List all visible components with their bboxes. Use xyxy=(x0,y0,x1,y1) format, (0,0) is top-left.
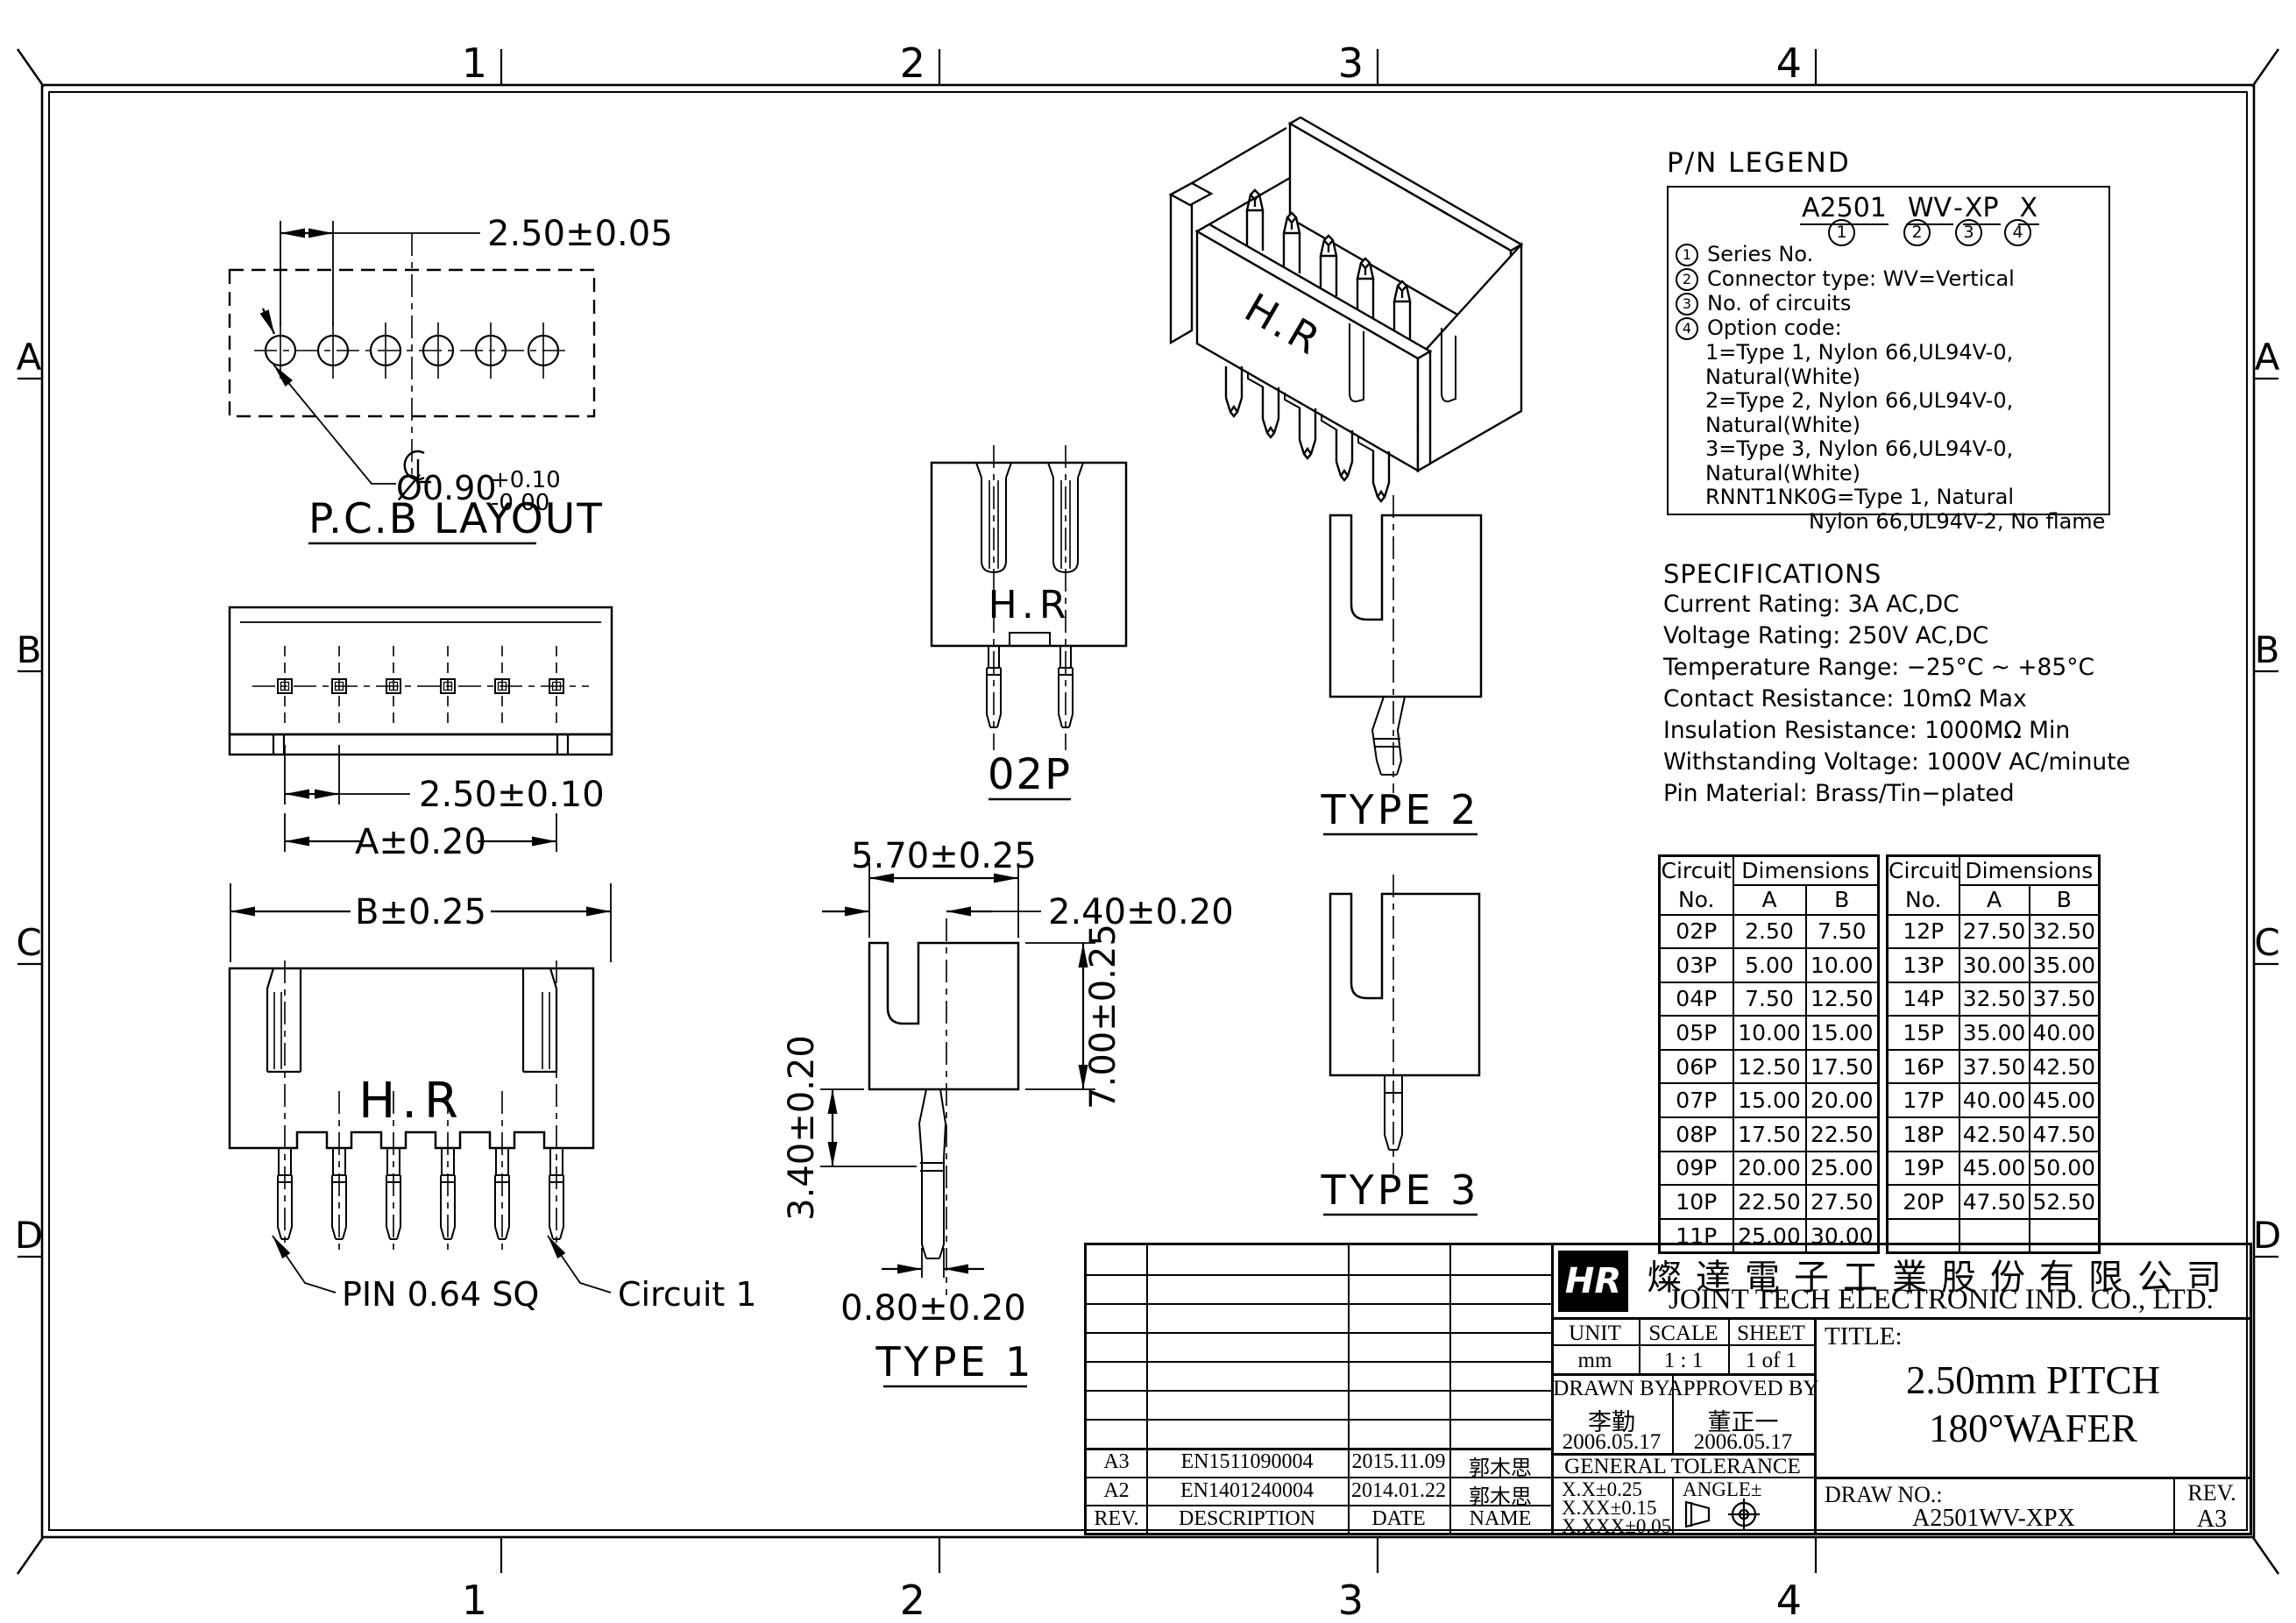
svg-text:3: 3 xyxy=(1338,1577,1364,1623)
approved-by-date: 2006.05.17 xyxy=(1694,1430,1793,1455)
type2-view xyxy=(1323,495,1481,834)
item-number: 2 xyxy=(1676,268,1698,291)
svg-text:C: C xyxy=(16,921,41,964)
specification-line: Insulation Resistance: 1000MΩ Min xyxy=(1663,715,2224,747)
pn-option-continuation: Nylon 66,UL94V-2, No flame xyxy=(1809,510,2108,535)
02p-label: 02P xyxy=(988,750,1072,799)
revision-desc: EN1511090004 xyxy=(1180,1450,1313,1474)
pn-option-line: 2=Type 2, Nylon 66,UL94V-0, Natural(Whit… xyxy=(1705,389,2108,437)
type3-view xyxy=(1323,875,1479,1215)
revision-name: 郭木思 xyxy=(1469,1450,1532,1481)
pn-legend-title: P/N LEGEND xyxy=(1667,147,2110,179)
table-row: 14P32.5037.50 xyxy=(1888,982,2100,1017)
item-text: Series No. xyxy=(1707,243,1813,266)
svg-text:B: B xyxy=(2255,628,2280,671)
pn-legend-item: 3No. of circuits xyxy=(1676,292,2108,315)
table-row: 17P40.0045.00 xyxy=(1888,1083,2100,1117)
svg-text:2: 2 xyxy=(900,1577,925,1623)
type3-label: TYPE 3 xyxy=(1321,1166,1480,1214)
rev-label: REV. xyxy=(2187,1480,2236,1506)
table-row: 05P10.0015.00 xyxy=(1660,1016,1879,1050)
col-circuit: Circuit xyxy=(1660,856,1733,885)
pn-legend-items: 1Series No.2Connector type: WV=Vertical3… xyxy=(1669,243,2108,340)
drawing-sheet: 1 2 3 4 1 2 3 4 A B C D A B C D 2.50±0.0… xyxy=(0,0,2296,1623)
pn-option-line: RNNT1NK0G=Type 1, Natural xyxy=(1705,485,2108,510)
specification-line: Voltage Rating: 250V AC,DC xyxy=(1663,620,2224,652)
revision-rev: A2 xyxy=(1103,1479,1129,1503)
rev-value: A3 xyxy=(2197,1506,2227,1534)
table-row: 16P37.5042.50 xyxy=(1888,1050,2100,1084)
title-block: HR 燦達電子工業股份有限公司 JOINT TECH ELECTRONIC IN… xyxy=(1084,1243,2252,1535)
svg-text:1: 1 xyxy=(462,1577,487,1623)
revision-header-name: NAME xyxy=(1470,1507,1532,1531)
pn-legend-item: 2Connector type: WV=Vertical xyxy=(1676,267,2108,291)
company-logo: HR xyxy=(1558,1251,1628,1312)
draw-no-value: A2501WV-XPX xyxy=(1912,1505,2075,1533)
drawn-by-date: 2006.05.17 xyxy=(1563,1430,1662,1455)
svg-text:D: D xyxy=(2253,1214,2281,1257)
item-number: 3 xyxy=(1676,293,1698,315)
revision-header-rev: REV. xyxy=(1095,1507,1139,1531)
company-name-en: JOINT TECH ELECTRONIC IND. CO., LTD. xyxy=(1669,1284,2214,1316)
front-view-brand: H.R xyxy=(358,1073,465,1130)
circuit-dimension-tables: Circuit Dimensions No. A B 02P2.507.5003… xyxy=(1658,854,2101,1254)
item-text: No. of circuits xyxy=(1707,292,1851,315)
svg-text:D: D xyxy=(15,1214,43,1257)
col-b: B xyxy=(2030,885,2100,915)
specifications-title: SPECIFICATIONS xyxy=(1663,559,2224,589)
pn-option-lines: 1=Type 1, Nylon 66,UL94V-0, Natural(Whit… xyxy=(1669,341,2108,510)
col-circuit: Circuit xyxy=(1888,856,1959,885)
pn-option-line: 1=Type 1, Nylon 66,UL94V-0, Natural(Whit… xyxy=(1705,341,2108,389)
dim-side-width: 5.70±0.25 xyxy=(851,836,1037,876)
dim-pin-width: 0.80±0.20 xyxy=(840,1288,1026,1329)
pn-option-line: 3=Type 3, Nylon 66,UL94V-0, Natural(Whit… xyxy=(1705,437,2108,485)
approved-by-label: APPROVED BY xyxy=(1668,1377,1819,1401)
sheet-label: SHEET xyxy=(1737,1322,1805,1346)
isometric-view xyxy=(1171,117,1521,501)
specification-lines: Current Rating: 3A AC,DCVoltage Rating: … xyxy=(1663,589,2224,810)
specification-line: Temperature Range: −25°C ~ +85°C xyxy=(1663,652,2224,684)
item-number: 4 xyxy=(1676,317,1698,340)
pn-legend-item: 4Option code: xyxy=(1676,316,2108,340)
svg-text:4: 4 xyxy=(1776,39,1802,87)
tolerance-3: X.XXX±0.05 xyxy=(1562,1515,1671,1538)
svg-text:C: C xyxy=(2254,921,2279,964)
scale-value: 1 : 1 xyxy=(1664,1349,1703,1373)
col-no: No. xyxy=(1888,885,1959,915)
svg-text:2: 2 xyxy=(900,39,925,87)
revision-header-desc: DESCRIPTION xyxy=(1179,1507,1315,1531)
dim-b: B±0.25 xyxy=(355,892,486,932)
revision-name: 郭木思 xyxy=(1469,1479,1532,1510)
revision-rev: A3 xyxy=(1103,1450,1129,1474)
circuit-label: Circuit 1 xyxy=(618,1275,757,1314)
svg-text:3: 3 xyxy=(1338,39,1364,87)
table-row: 03P5.0010.00 xyxy=(1660,948,1879,982)
pn-legend: P/N LEGEND A2501 WV-XP X 1 2 3 4 1Series… xyxy=(1667,147,2110,515)
col-dimensions: Dimensions xyxy=(1733,856,1879,885)
table-row: 12P27.5032.50 xyxy=(1888,915,2100,949)
table-row: 08P17.5022.50 xyxy=(1660,1117,1879,1152)
table-row: 19P45.0050.00 xyxy=(1888,1152,2100,1186)
col-dimensions: Dimensions xyxy=(1959,856,2100,885)
table-row: 10P22.5027.50 xyxy=(1660,1185,1879,1219)
svg-text:A: A xyxy=(17,336,42,379)
pin-label: PIN 0.64 SQ xyxy=(342,1275,539,1314)
dim-side-offset: 2.40±0.20 xyxy=(1048,892,1234,932)
svg-text:B: B xyxy=(17,628,42,671)
table-row: 07P15.0020.00 xyxy=(1660,1083,1879,1117)
02p-brand: H.R xyxy=(989,583,1072,627)
revision-header-date: DATE xyxy=(1371,1507,1425,1531)
col-a: A xyxy=(1959,885,2030,915)
table-row: 09P20.0025.00 xyxy=(1660,1152,1879,1186)
revision-desc: EN1401240004 xyxy=(1180,1479,1314,1503)
general-tolerance-label: GENERAL TOLERANCE xyxy=(1564,1455,1801,1479)
drawing-title-line2: 180°WAFER xyxy=(1929,1406,2137,1451)
svg-text:1: 1 xyxy=(462,39,487,87)
col-a: A xyxy=(1733,885,1806,915)
svg-text:4: 4 xyxy=(1776,1577,1802,1623)
part-marker-2: 2 xyxy=(1903,219,1931,246)
drawn-by-label: DRAWN BY xyxy=(1553,1377,1669,1401)
part-number-row: A2501 WV-XP X 1 2 3 4 xyxy=(1669,188,2108,242)
col-no: No. xyxy=(1660,885,1733,915)
item-number: 1 xyxy=(1676,244,1698,266)
type1-label: TYPE 1 xyxy=(875,1338,1035,1386)
dim-a: A±0.20 xyxy=(355,822,486,862)
sheet-value: 1 of 1 xyxy=(1746,1349,1796,1373)
col-b: B xyxy=(1806,885,1879,915)
scale-label: SCALE xyxy=(1648,1322,1718,1346)
revision-date: 2015.11.09 xyxy=(1351,1450,1445,1474)
part-marker-3: 3 xyxy=(1955,219,1982,246)
table-row: 13P30.0035.00 xyxy=(1888,948,2100,982)
specifications: SPECIFICATIONS Current Rating: 3A AC,DCV… xyxy=(1663,559,2224,810)
pn-legend-box: A2501 WV-XP X 1 2 3 4 1Series No.2Connec… xyxy=(1667,186,2110,515)
type2-label: TYPE 2 xyxy=(1321,786,1480,833)
table-row: 15P35.0040.00 xyxy=(1888,1016,2100,1050)
item-text: Option code: xyxy=(1707,316,1842,340)
unit-label: UNIT xyxy=(1569,1322,1621,1346)
unit-value: mm xyxy=(1578,1349,1612,1373)
dim-side-height: 7.00±0.25 xyxy=(1083,924,1123,1109)
dim-top-pitch: 2.50±0.10 xyxy=(419,775,605,815)
dim-pin-upper: 3.40±0.20 xyxy=(782,1035,822,1221)
part-marker-1: 1 xyxy=(1828,219,1855,246)
part-marker-4: 4 xyxy=(2004,219,2031,246)
table-row: 04P7.5012.50 xyxy=(1660,982,1879,1017)
table-row: 18P42.5047.50 xyxy=(1888,1117,2100,1152)
title-label: TITLE: xyxy=(1825,1322,1903,1351)
specification-line: Current Rating: 3A AC,DC xyxy=(1663,589,2224,620)
table-row: 20P47.5052.50 xyxy=(1888,1185,2100,1219)
item-text: Connector type: WV=Vertical xyxy=(1707,267,2015,291)
projection-symbol xyxy=(1679,1498,1811,1531)
pcb-layout-label: P.C.B LAYOUT xyxy=(308,495,604,543)
table-row: 02P2.507.50 xyxy=(1660,915,1879,949)
specification-line: Withstanding Voltage: 1000V AC/minute xyxy=(1663,747,2224,778)
part-dash: - xyxy=(1953,193,1963,223)
specification-line: Pin Material: Brass/Tin−plated xyxy=(1663,778,2224,810)
drawing-title-line1: 2.50mm PITCH xyxy=(1906,1357,2160,1403)
pn-legend-item: 1Series No. xyxy=(1676,243,2108,266)
svg-text:A: A xyxy=(2255,336,2280,379)
revision-date: 2014.01.22 xyxy=(1351,1479,1446,1503)
circuit-table-right: Circuit Dimensions No. A B 12P27.5032.50… xyxy=(1886,854,2101,1254)
circuit-table-left: Circuit Dimensions No. A B 02P2.507.5003… xyxy=(1658,854,1880,1254)
dim-pcb-pitch: 2.50±0.05 xyxy=(487,214,673,254)
specification-line: Contact Resistance: 10mΩ Max xyxy=(1663,684,2224,715)
table-row: 06P12.5017.50 xyxy=(1660,1050,1879,1084)
